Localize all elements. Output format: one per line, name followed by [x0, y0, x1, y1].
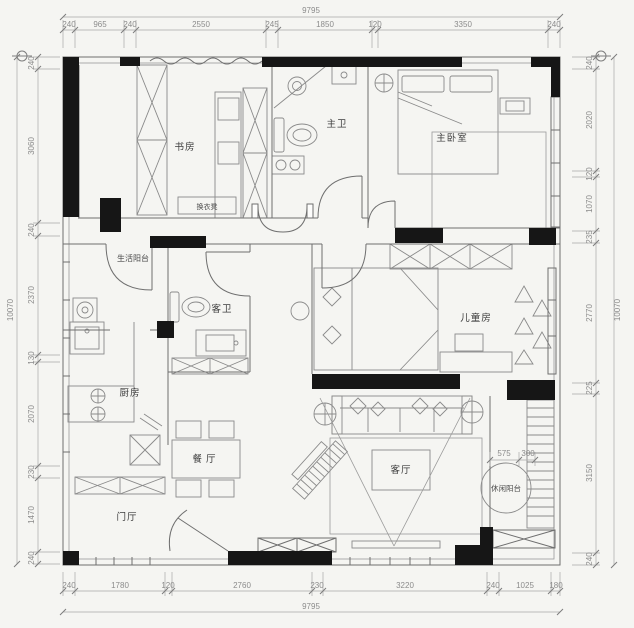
dim-bottom-seg-8: 180 [549, 581, 563, 590]
dim-top-seg-8: 240 [547, 20, 561, 29]
dim-right-total: 10070 [613, 298, 622, 321]
dim-right-seg-2: 120 [585, 167, 594, 181]
hall-light [291, 302, 309, 320]
dim-left-total: 10070 [6, 298, 15, 321]
dim-left-seg-3: 2370 [27, 286, 36, 304]
floor-plan-drawing: 9795 240 965 240 2550 245 1850 120 3350 … [0, 0, 634, 628]
furniture-kitchen [68, 322, 162, 465]
entry-door [169, 510, 228, 551]
room-label-master-bath: 主卫 [326, 118, 347, 130]
dim-bottom-seg-3: 2760 [233, 581, 251, 590]
dim-bottom-seg-6: 240 [486, 581, 500, 590]
sofa [332, 396, 472, 434]
dim-left-seg-7: 1470 [27, 506, 36, 524]
bedroom-window [551, 97, 560, 227]
room-label-living: 客厅 [390, 464, 411, 476]
master-bath-door [318, 176, 362, 218]
service-balcony-door [106, 244, 152, 290]
dim-left-seg-1: 3060 [27, 137, 36, 155]
dim-top-seg-3: 2550 [192, 20, 210, 29]
dim-left-seg-4: 130 [27, 351, 36, 365]
dim-bottom-seg-2: 120 [161, 581, 175, 590]
plants [515, 286, 551, 364]
dim-left-seg-2: 240 [27, 223, 36, 237]
room-label-foyer: 门厅 [116, 511, 137, 523]
furniture-kids-room [314, 244, 551, 372]
room-label-dining: 餐厅 [192, 453, 219, 465]
dim-top-seg-5: 1850 [316, 20, 334, 29]
room-label-study: 书房 [174, 141, 195, 153]
kids-bed [314, 268, 438, 370]
bottom-left-window [96, 557, 150, 565]
furniture-master-bedroom [375, 70, 546, 228]
double-door [258, 206, 307, 232]
room-label-master-bedroom: 主卧室 [436, 132, 468, 144]
dim-right-seg-0: 240 [585, 56, 594, 70]
dim-left-seg-5: 2070 [27, 405, 36, 423]
bottom-center-window [350, 557, 430, 565]
furniture-living [285, 396, 483, 548]
dim-bottom-seg-7: 1025 [516, 581, 534, 590]
dim-top-seg-2: 240 [123, 20, 137, 29]
furniture-study [137, 65, 267, 218]
dim-top-seg-7: 3350 [454, 20, 472, 29]
dim-left-seg-0: 240 [27, 56, 36, 70]
room-label-dressing-bench: 换衣凳 [197, 202, 218, 211]
room-label-leisure-balcony: 休闲阳台 [491, 483, 521, 493]
dimension-left: 10070 240 3060 240 2370 130 2070 230 147… [6, 54, 60, 567]
kids-window [548, 268, 556, 374]
dim-bottom-seg-4: 230 [310, 581, 324, 590]
dim-right-seg-6: 225 [585, 381, 594, 395]
dim-bottom-seg-0: 240 [62, 581, 76, 590]
bed [398, 70, 498, 174]
living-rug [330, 438, 482, 534]
desk [440, 352, 512, 372]
dim-top-total: 9795 [302, 6, 320, 15]
dim-bottom-total: 9795 [302, 602, 320, 611]
dim-left-seg-6: 230 [27, 465, 36, 479]
dim-bottom-seg-5: 3220 [396, 581, 414, 590]
kids-wardrobe [390, 244, 512, 269]
dim-inner-w: 575 [497, 449, 511, 458]
dim-left-seg-8: 240 [27, 551, 36, 565]
dimension-right: 10070 240 2020 120 1070 235 2770 225 315… [572, 54, 622, 568]
room-label-kitchen: 厨房 [119, 387, 140, 399]
dim-right-seg-8: 240 [585, 552, 594, 566]
kids-room-door [322, 244, 366, 288]
floor-plan-sheet: 9795 240 965 240 2550 245 1850 120 3350 … [0, 0, 634, 628]
room-label-service-balcony: 生活阳台 [117, 253, 149, 263]
dim-right-seg-3: 1070 [585, 195, 594, 213]
drying-rack [527, 400, 554, 528]
furniture-foyer [75, 477, 165, 494]
dim-right-seg-4: 235 [585, 230, 594, 244]
furniture-leisure-balcony [481, 400, 554, 528]
dim-top-seg-4: 245 [265, 20, 279, 29]
room-label-kids-room: 儿童房 [460, 312, 492, 324]
dimension-bottom: 9795 240 1780 120 2760 230 3220 240 1025… [60, 572, 563, 615]
guest-bath-door [206, 252, 250, 296]
rug [432, 132, 546, 228]
dim-right-seg-7: 3150 [585, 464, 594, 482]
furniture-guest-bath [170, 292, 248, 374]
room-labels: 书房 主卫 主卧室 换衣凳 生活阳台 客卫 厨房 餐厅 客厅 门厅 儿童房 休闲… [116, 118, 521, 523]
dim-right-seg-5: 2770 [585, 304, 594, 322]
dim-top-seg-0: 240 [62, 20, 76, 29]
dim-top-seg-6: 120 [368, 20, 382, 29]
dim-top-seg-1: 965 [93, 20, 107, 29]
dim-inner-d: 300 [521, 449, 535, 458]
dim-right-seg-1: 2020 [585, 111, 594, 129]
room-label-guest-bath: 客卫 [211, 303, 232, 315]
furniture-service-balcony [73, 298, 97, 322]
dimension-top: 9795 240 965 240 2550 245 1850 120 3350 … [60, 6, 563, 48]
master-bedroom-door [368, 201, 395, 228]
dim-bottom-seg-1: 1780 [111, 581, 129, 590]
tv-console [285, 434, 347, 499]
